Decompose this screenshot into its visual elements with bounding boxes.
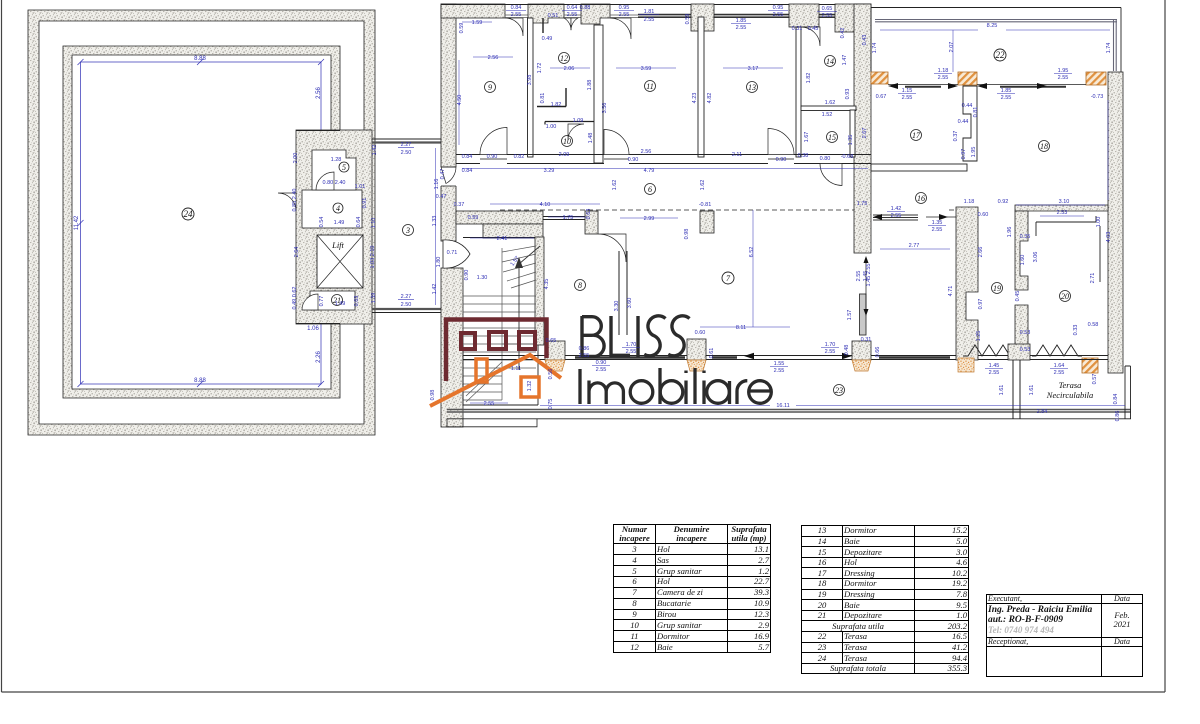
svg-text:12: 12: [560, 54, 568, 63]
svg-text:2.55: 2.55: [932, 227, 943, 233]
svg-text:1.49: 1.49: [335, 301, 346, 307]
svg-text:1.18: 1.18: [964, 199, 975, 205]
svg-text:0.37: 0.37: [953, 131, 959, 142]
svg-text:8.88: 8.88: [194, 378, 206, 384]
svg-text:Terasa: Terasa: [1059, 380, 1082, 390]
svg-text:0.80 2.40: 0.80 2.40: [323, 180, 346, 186]
svg-text:1.82: 1.82: [551, 102, 562, 108]
svg-text:1.52: 1.52: [822, 112, 833, 118]
svg-text:16.11: 16.11: [776, 403, 789, 409]
svg-text:0.47: 0.47: [440, 169, 446, 180]
svg-text:1.10: 1.10: [371, 218, 377, 229]
svg-text:2.55: 2.55: [773, 12, 784, 18]
svg-text:0.86: 0.86: [579, 346, 590, 352]
svg-text:2.55: 2.55: [902, 95, 913, 101]
svg-text:1.00: 1.00: [1096, 217, 1102, 228]
svg-text:3.59: 3.59: [641, 66, 652, 72]
svg-text:1.82: 1.82: [806, 73, 812, 84]
svg-text:1.03 2.10: 1.03 2.10: [370, 246, 376, 269]
svg-text:3.17: 3.17: [748, 66, 759, 72]
svg-text:4.35: 4.35: [544, 279, 550, 290]
svg-text:2.71: 2.71: [1090, 273, 1096, 284]
svg-text:0.95: 0.95: [773, 5, 784, 11]
svg-text:1.80: 1.80: [436, 257, 442, 268]
svg-text:1.96: 1.96: [1007, 227, 1013, 238]
svg-text:1.81: 1.81: [644, 9, 655, 15]
svg-text:2.06: 2.06: [564, 66, 575, 72]
svg-text:3.06: 3.06: [1033, 252, 1039, 263]
svg-text:0.45: 0.45: [1015, 291, 1021, 302]
svg-text:8: 8: [578, 281, 582, 290]
svg-text:1.35: 1.35: [848, 135, 854, 146]
svg-text:0.51: 0.51: [548, 13, 559, 19]
svg-text:4.23: 4.23: [692, 93, 698, 104]
svg-text:0.56: 0.56: [548, 369, 554, 380]
svg-text:1.18: 1.18: [938, 68, 949, 74]
svg-text:0.84: 0.84: [462, 154, 473, 160]
svg-text:0.65: 0.65: [822, 6, 833, 12]
svg-text:2.55: 2.55: [822, 13, 833, 19]
svg-text:15: 15: [828, 133, 836, 142]
svg-text:10: 10: [563, 137, 571, 146]
svg-text:0.63: 0.63: [586, 209, 592, 220]
svg-text:1.85: 1.85: [1001, 88, 1012, 94]
svg-text:2.55: 2.55: [938, 75, 949, 81]
svg-text:0.84: 0.84: [462, 168, 473, 174]
svg-text:1.95: 1.95: [1058, 68, 1069, 74]
svg-text:2.50: 2.50: [401, 150, 412, 156]
svg-text:0.75: 0.75: [548, 399, 554, 410]
svg-text:11: 11: [646, 82, 653, 91]
svg-text:2.64: 2.64: [294, 247, 300, 258]
svg-text:0.97: 0.97: [978, 299, 984, 310]
svg-text:2.55: 2.55: [891, 213, 902, 219]
svg-text:0.54: 0.54: [319, 217, 325, 228]
svg-text:2.84: 2.84: [1037, 409, 1048, 415]
svg-text:0.90: 0.90: [776, 157, 787, 163]
svg-text:1.01: 1.01: [355, 184, 366, 190]
svg-text:0.60: 0.60: [978, 212, 989, 218]
svg-text:2.55: 2.55: [579, 353, 590, 359]
svg-text:4.50: 4.50: [457, 95, 463, 106]
svg-text:1.72: 1.72: [537, 63, 543, 74]
svg-text:4.03: 4.03: [1106, 232, 1112, 243]
svg-text:0.84: 0.84: [511, 5, 522, 11]
svg-text:1.70: 1.70: [825, 342, 836, 348]
svg-text:1.75: 1.75: [563, 215, 574, 221]
svg-text:1.75: 1.75: [857, 201, 868, 207]
svg-text:18: 18: [1040, 142, 1048, 151]
svg-text:11.42: 11.42: [74, 215, 80, 230]
svg-text:2.41: 2.41: [497, 236, 508, 242]
svg-text:0.63: 0.63: [354, 296, 360, 307]
svg-text:23: 23: [835, 386, 843, 395]
svg-text:2.55: 2.55: [1058, 75, 1069, 81]
svg-text:2.00: 2.00: [293, 153, 299, 164]
svg-text:2.07: 2.07: [949, 42, 955, 53]
svg-text:1.61: 1.61: [999, 385, 1005, 396]
svg-text:1.48: 1.48: [588, 133, 594, 144]
svg-text:0.53: 0.53: [1020, 347, 1031, 353]
svg-text:0.49: 0.49: [542, 36, 553, 42]
svg-text:14: 14: [826, 57, 834, 66]
svg-text:0.44: 0.44: [962, 103, 973, 109]
svg-text:2.67: 2.67: [862, 128, 868, 139]
svg-text:0.88: 0.88: [580, 5, 591, 11]
svg-text:-0.68: -0.68: [841, 154, 854, 160]
svg-text:1.00: 1.00: [546, 124, 557, 130]
svg-text:1.88: 1.88: [587, 80, 593, 91]
svg-text:0.31: 0.31: [792, 26, 803, 32]
svg-text:2.09: 2.09: [559, 152, 570, 158]
svg-text:5: 5: [342, 163, 346, 172]
svg-text:4.71: 4.71: [948, 286, 954, 297]
svg-text:1.11: 1.11: [511, 366, 521, 372]
svg-text:0.90: 0.90: [487, 154, 498, 160]
svg-text:2.66: 2.66: [978, 247, 984, 258]
svg-text:1.85: 1.85: [736, 18, 747, 24]
svg-text:2.50: 2.50: [401, 302, 412, 308]
svg-text:0.86: 0.86: [1115, 411, 1121, 422]
svg-text:0.91: 0.91: [362, 198, 368, 209]
svg-text:1.42: 1.42: [432, 284, 438, 295]
svg-text:2.55: 2.55: [619, 12, 630, 18]
svg-text:1.55: 1.55: [774, 361, 785, 367]
svg-text:0.81: 0.81: [540, 93, 546, 104]
svg-text:1.59: 1.59: [472, 20, 483, 26]
svg-text:2.26: 2.26: [316, 351, 322, 363]
svg-text:2.99: 2.99: [644, 216, 655, 222]
svg-text:22: 22: [996, 50, 1006, 60]
svg-text:0.43: 0.43: [862, 35, 868, 46]
svg-text:1.45 2.55: 1.45 2.55: [866, 264, 872, 287]
svg-text:2.55: 2.55: [626, 349, 637, 355]
svg-text:1.09: 1.09: [573, 118, 584, 124]
svg-text:3.10: 3.10: [1059, 199, 1070, 205]
svg-text:2.55: 2.55: [825, 349, 836, 355]
svg-text:2.55: 2.55: [596, 367, 607, 373]
svg-text:3: 3: [405, 226, 410, 235]
svg-text:0.47: 0.47: [436, 194, 447, 200]
svg-text:0.31: 0.31: [861, 337, 872, 343]
svg-text:1.45: 1.45: [989, 363, 1000, 369]
svg-text:1.16: 1.16: [434, 179, 440, 190]
svg-text:-0.73: -0.73: [1091, 94, 1104, 100]
svg-text:2.55: 2.55: [644, 17, 655, 23]
svg-text:1.30: 1.30: [477, 275, 488, 281]
svg-text:7: 7: [726, 274, 731, 283]
svg-text:Necirculabila: Necirculabila: [1046, 390, 1093, 400]
svg-text:1.62: 1.62: [700, 180, 706, 191]
svg-text:24: 24: [184, 209, 194, 219]
svg-text:3.98: 3.98: [527, 75, 533, 86]
svg-text:3.29: 3.29: [544, 168, 555, 174]
svg-text:1.33: 1.33: [432, 216, 438, 227]
svg-text:0.85 2.40: 0.85 2.40: [292, 189, 298, 212]
svg-text:0.80: 0.80: [820, 156, 831, 162]
svg-text:0.92: 0.92: [998, 199, 1009, 205]
svg-text:0.59: 0.59: [468, 215, 479, 221]
svg-text:0.59: 0.59: [685, 14, 691, 25]
svg-text:0.64: 0.64: [356, 217, 362, 228]
svg-text:0.66: 0.66: [875, 347, 881, 358]
svg-text:0.59: 0.59: [459, 23, 465, 34]
svg-text:8.25: 8.25: [987, 23, 998, 29]
svg-text:0.71: 0.71: [447, 250, 458, 256]
svg-text:2.56: 2.56: [316, 87, 322, 99]
svg-text:0.90: 0.90: [596, 360, 607, 366]
svg-text:1.61: 1.61: [1029, 385, 1035, 396]
svg-text:2.55: 2.55: [1001, 95, 1012, 101]
svg-text:0.53: 0.53: [1020, 330, 1031, 336]
svg-text:2.53: 2.53: [1057, 210, 1068, 216]
svg-text:3.56: 3.56: [602, 103, 608, 114]
svg-text:1.32: 1.32: [527, 381, 533, 392]
svg-text:1.74: 1.74: [1106, 43, 1112, 54]
svg-text:1.25: 1.25: [976, 331, 982, 342]
svg-text:0.45: 0.45: [808, 26, 819, 32]
svg-text:1.39: 1.39: [371, 293, 377, 304]
svg-text:6: 6: [648, 185, 652, 194]
svg-text:Lift: Lift: [331, 240, 344, 250]
svg-text:0.84: 0.84: [1113, 394, 1119, 405]
svg-text:1.28: 1.28: [331, 157, 342, 163]
svg-text:3.60: 3.60: [627, 298, 633, 309]
svg-text:0.90: 0.90: [464, 270, 470, 281]
svg-text:0.93: 0.93: [845, 89, 851, 100]
svg-text:1.35: 1.35: [932, 220, 943, 226]
svg-text:2.55: 2.55: [567, 12, 578, 18]
svg-text:17: 17: [912, 131, 921, 140]
svg-text:2.56: 2.56: [488, 55, 499, 61]
svg-text:2.56: 2.56: [641, 149, 652, 155]
svg-text:2.55: 2.55: [484, 401, 495, 407]
svg-text:0.64: 0.64: [567, 5, 578, 11]
svg-text:3.30: 3.30: [614, 301, 620, 312]
svg-text:2.55: 2.55: [1054, 370, 1065, 376]
svg-text:1.15: 1.15: [902, 88, 913, 94]
svg-text:0.81: 0.81: [973, 107, 979, 118]
svg-text:2.55: 2.55: [511, 12, 522, 18]
svg-text:0.95: 0.95: [619, 5, 630, 11]
svg-text:2.77: 2.77: [909, 243, 920, 249]
svg-text:0.57: 0.57: [1092, 374, 1098, 385]
svg-text:4.10: 4.10: [540, 202, 551, 208]
svg-text:0.44: 0.44: [958, 119, 969, 125]
svg-text:0.90: 0.90: [628, 157, 639, 163]
svg-text:1.42: 1.42: [891, 206, 902, 212]
svg-text:1.60: 1.60: [1020, 255, 1026, 266]
svg-text:1.67: 1.67: [804, 132, 810, 143]
svg-text:2.55: 2.55: [856, 271, 862, 282]
svg-text:2.55: 2.55: [736, 25, 747, 31]
svg-text:19: 19: [993, 284, 1001, 293]
svg-text:13: 13: [748, 83, 756, 92]
svg-text:0.82: 0.82: [514, 154, 525, 160]
svg-text:1.06: 1.06: [307, 326, 319, 332]
svg-text:0.61: 0.61: [709, 348, 715, 359]
svg-text:2.11: 2.11: [732, 152, 742, 158]
svg-text:4.82: 4.82: [707, 93, 713, 104]
svg-text:0.37: 0.37: [454, 202, 465, 208]
svg-text:0.98: 0.98: [684, 229, 690, 240]
svg-text:16: 16: [917, 194, 925, 203]
svg-text:2.55: 2.55: [989, 370, 1000, 376]
svg-text:2.55: 2.55: [774, 368, 785, 374]
svg-text:1.95: 1.95: [971, 147, 977, 158]
svg-text:2.27: 2.27: [401, 294, 412, 300]
svg-text:1.74: 1.74: [872, 43, 878, 54]
svg-text:20: 20: [1061, 292, 1069, 301]
svg-text:0.33: 0.33: [1073, 325, 1079, 336]
svg-text:0.42: 0.42: [840, 28, 846, 39]
svg-text:0.97: 0.97: [961, 149, 967, 160]
svg-text:6.52: 6.52: [749, 247, 755, 258]
svg-text:4: 4: [336, 204, 340, 213]
svg-text:0.48: 0.48: [844, 345, 850, 356]
svg-text:1.64: 1.64: [1054, 363, 1065, 369]
svg-text:0.35: 0.35: [1020, 234, 1031, 240]
svg-text:-0.81: -0.81: [699, 202, 712, 208]
svg-text:8.88: 8.88: [194, 56, 206, 62]
svg-text:0.65: 0.65: [546, 338, 557, 344]
svg-text:1.62: 1.62: [825, 100, 836, 106]
svg-text:4.79: 4.79: [644, 168, 655, 174]
svg-text:8.11: 8.11: [736, 325, 746, 331]
svg-text:1.62: 1.62: [612, 180, 618, 191]
svg-text:0.77: 0.77: [319, 296, 325, 307]
svg-text:0.60: 0.60: [695, 330, 706, 336]
svg-text:0.67: 0.67: [876, 94, 887, 100]
svg-text:1.49: 1.49: [334, 220, 345, 226]
svg-text:1.70: 1.70: [626, 342, 637, 348]
svg-text:0.98: 0.98: [430, 390, 436, 401]
svg-text:1.57: 1.57: [847, 310, 853, 321]
svg-text:9: 9: [488, 83, 492, 92]
svg-text:0.49 0.62: 0.49 0.62: [292, 287, 298, 310]
svg-text:0.58: 0.58: [1088, 322, 1099, 328]
svg-text:0.38: 0.38: [798, 153, 809, 159]
svg-text:1.42: 1.42: [372, 145, 378, 156]
svg-text:1.47: 1.47: [842, 55, 848, 66]
svg-text:2.27: 2.27: [401, 142, 412, 148]
